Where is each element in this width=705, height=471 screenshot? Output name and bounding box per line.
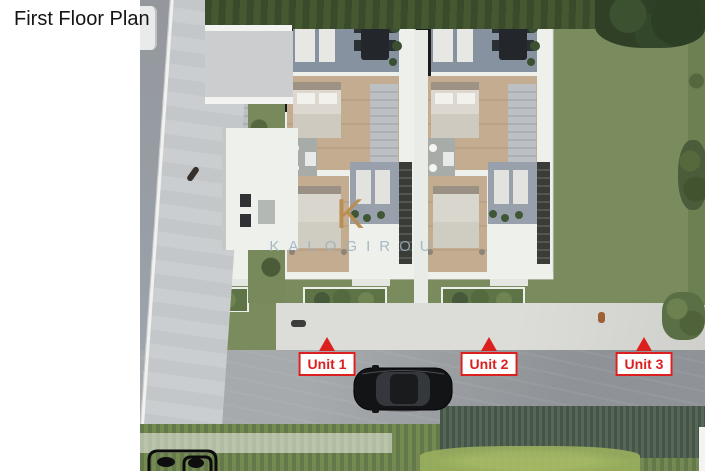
rear-terrace — [488, 162, 537, 224]
page-title: First Floor Plan — [14, 8, 150, 31]
unit-2-floorplan — [278, 0, 416, 312]
unit-marker-arrow-icon — [636, 337, 652, 351]
boundary-wall-mid — [205, 97, 293, 104]
unit-marker-arrow-icon — [481, 337, 497, 351]
party-wall — [414, 30, 428, 303]
boundary-wall-top — [205, 25, 292, 31]
front-wall — [279, 272, 415, 279]
bathroom — [425, 138, 455, 176]
front-wall — [417, 272, 553, 279]
bush-walkway — [662, 292, 705, 340]
side-canopy — [222, 128, 298, 250]
pavement-sliver — [699, 427, 705, 471]
driveway — [205, 31, 293, 97]
tree-right-edge — [678, 140, 705, 210]
unit-marker-arrow-icon — [319, 337, 335, 351]
plan-render: K KALOGIROU Unit 1 Unit 2 Unit 3 — [140, 0, 705, 471]
outdoor-table — [258, 200, 275, 224]
unit-label-1: Unit 1 — [299, 352, 356, 376]
tree-canopy-top-right — [595, 0, 705, 48]
side-staircase-dark — [399, 162, 412, 264]
partial-badge-icon — [146, 446, 220, 471]
unit-3-floorplan — [416, 0, 554, 312]
bedroom-lower — [425, 176, 487, 272]
bbq-icon — [240, 214, 251, 227]
grass-bright-patch — [420, 446, 640, 471]
rear-terrace — [350, 162, 399, 224]
staircase — [508, 84, 536, 162]
person-icon — [598, 312, 605, 323]
car-top-view-icon — [352, 364, 454, 414]
side-staircase-dark — [537, 162, 550, 264]
entry-step — [352, 279, 390, 286]
unit-label-3: Unit 3 — [616, 352, 673, 376]
floor-plan-page: First Floor Plan — [0, 0, 705, 471]
staircase — [370, 84, 398, 162]
scooter-icon — [291, 320, 306, 327]
bbq-icon — [240, 194, 251, 207]
unit-label-2: Unit 2 — [461, 352, 518, 376]
entry-step — [490, 279, 528, 286]
